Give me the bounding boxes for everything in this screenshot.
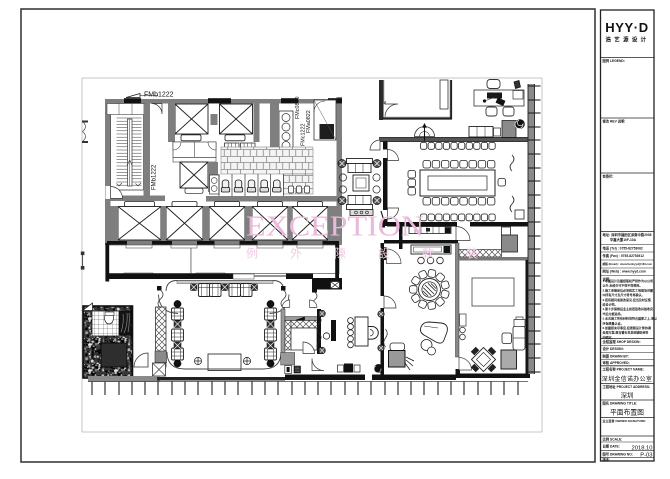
svg-text:工程名称 PROJECT NAME:: 工程名称 PROJECT NAME:	[603, 367, 644, 372]
svg-text:传真 (Fax) : 0755-82753912: 传真 (Fax) : 0755-82753912	[602, 253, 645, 258]
svg-text:平面布置图: 平面布置图	[610, 408, 644, 417]
svg-text:FMb1222: FMb1222	[152, 164, 158, 190]
svg-text:工程地址 PROJECT ADDRESS:: 工程地址 PROJECT ADDRESS:	[603, 384, 651, 389]
svg-text:日期 DATE:: 日期 DATE:	[603, 444, 620, 449]
svg-text:审核 APPROVED:: 审核 APPROVED:	[603, 360, 630, 365]
svg-text:会签栏:: 会签栏:	[603, 174, 614, 179]
svg-text:制图 DRAWN BY:: 制图 DRAWN BY:	[603, 354, 629, 359]
svg-text:给设计师。: 给设计师。	[602, 302, 618, 307]
svg-text:FMc0820: FMc0820	[295, 97, 301, 119]
svg-text:修改 REV 说明:: 修改 REV 说明:	[602, 119, 626, 124]
svg-text:地址: 深圳市福田区深南中路2008: 地址: 深圳市福田区深南中路2008	[603, 232, 652, 237]
svg-text:比例 SCALE:: 比例 SCALE:	[603, 437, 623, 442]
svg-text:网址 (Web) : www.hyyd.com: 网址 (Web) : www.hyyd.com	[603, 269, 646, 274]
svg-text:处理方案,报当管负责其他辅助材料: 处理方案,报当管负责其他辅助材料	[602, 330, 649, 335]
svg-text:FMa0822: FMa0822	[306, 110, 312, 133]
svg-text:2018.10: 2018.10	[632, 445, 653, 451]
svg-text:业主签章 OWNER SIGNATURE:: 业主签章 OWNER SIGNATURE:	[603, 418, 647, 423]
svg-text:中所有尺寸及尺寸符号再确认。: 中所有尺寸及尺寸符号再确认。	[603, 292, 645, 297]
svg-text:4.第十步装修后业主如若签收并验收完: 4.第十步装修后业主如若签收并验收完	[603, 306, 654, 311]
svg-text:FMc1222: FMc1222	[301, 124, 307, 146]
svg-text:6.如图纸未尽事宜,应按照设计师协调: 6.如图纸未尽事宜,应按照设计师协调	[603, 325, 651, 330]
svg-text:设计 DESIGN:: 设计 DESIGN:	[603, 346, 624, 351]
svg-text:图名 DRAWING TITLE:: 图名 DRAWING TITLE:	[603, 401, 638, 406]
svg-text:以外,未经许可不得不得使用。: 以外,未经许可不得不得使用。	[603, 283, 643, 288]
svg-text:版本:: 版本:	[603, 457, 611, 462]
svg-text:浩艺源设计: 浩艺源设计	[606, 36, 650, 44]
svg-text:图号 DRAWING NO:: 图号 DRAWING NO:	[603, 452, 633, 457]
svg-text:深圳金信诺办公室: 深圳金信诺办公室	[602, 375, 652, 383]
svg-text:华嘉大厦10F-10A: 华嘉大厦10F-10A	[603, 237, 637, 242]
svg-text:1.本图设计及图纸版权严禁作为以公司: 1.本图设计及图纸版权严禁作为以公司	[603, 278, 654, 283]
svg-text:全程监理 SHOP DESIGN:: 全程监理 SHOP DESIGN:	[602, 339, 641, 344]
svg-text:例外陳設軟裝: 例外陳設軟裝	[246, 246, 510, 261]
svg-text:FMb1222: FMb1222	[144, 92, 174, 99]
svg-text:环保质量认证。: 环保质量认证。	[603, 320, 624, 325]
svg-text:2.施工承接单位必须核实工地现场对图: 2.施工承接单位必须核实工地现场对图	[603, 287, 654, 292]
svg-text:HYY·D: HYY·D	[605, 20, 648, 35]
svg-text:电话 (Tel) : 0755-82753062: 电话 (Tel) : 0755-82753062	[603, 246, 643, 251]
svg-text:邮箱 (Email) : shenzhenhyyd@163.: 邮箱 (Email) : shenzhenhyyd@163.com	[603, 262, 653, 266]
svg-text:3.若有疑问或更改意见,应当及时反馈: 3.若有疑问或更改意见,应当及时反馈	[603, 297, 651, 302]
svg-text:图例 LEGEND:: 图例 LEGEND:	[603, 58, 625, 63]
svg-text:深圳: 深圳	[621, 391, 634, 400]
svg-text:5.本次施工所有材料须符合国家之上,须以: 5.本次施工所有材料须符合国家之上,须以	[603, 316, 657, 321]
svg-text:P-03: P-03	[640, 453, 652, 459]
svg-text:毕后方能退场。: 毕后方能退场。	[603, 311, 624, 316]
svg-text:EXCEPTION: EXCEPTION	[246, 211, 424, 243]
